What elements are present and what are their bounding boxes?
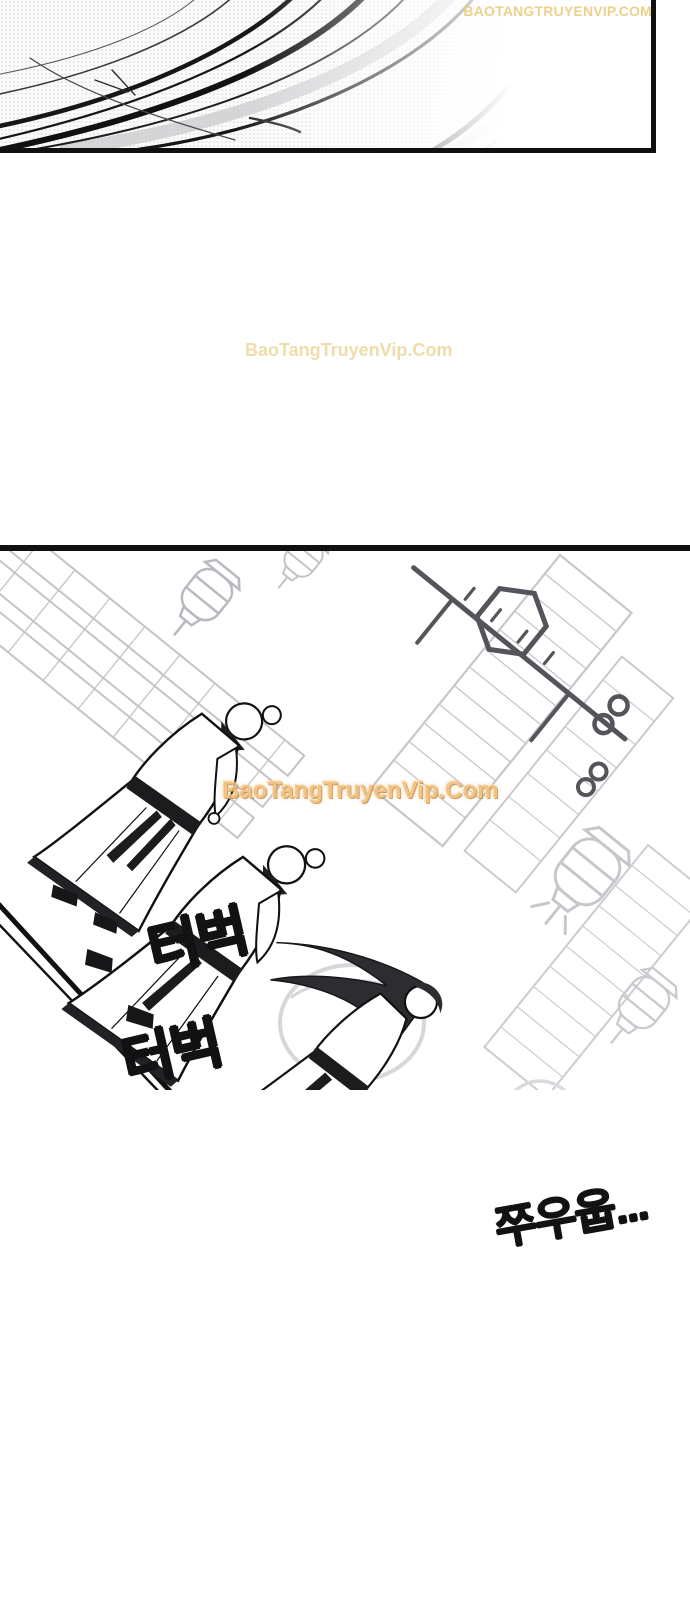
main-panel: BaoTangTruyenVip.Com 터벅 터벅 쭈우웁... (0, 545, 690, 1600)
lantern (157, 555, 244, 648)
panel-top-border (0, 545, 690, 551)
lantern (266, 545, 332, 598)
manga-page: BAOTANGTRUYENVIP.COM BaoTangTruyenVip.Co… (0, 0, 690, 1600)
watermark-top: BAOTANGTRUYENVIP.COM (452, 3, 652, 19)
panel-highlight-fade (0, 0, 651, 148)
watermark-panel: BaoTangTruyenVip.Com (222, 777, 498, 805)
lantern (594, 963, 681, 1056)
watermark-gap: BaoTangTruyenVip.Com (245, 340, 452, 361)
top-panel (0, 0, 656, 153)
